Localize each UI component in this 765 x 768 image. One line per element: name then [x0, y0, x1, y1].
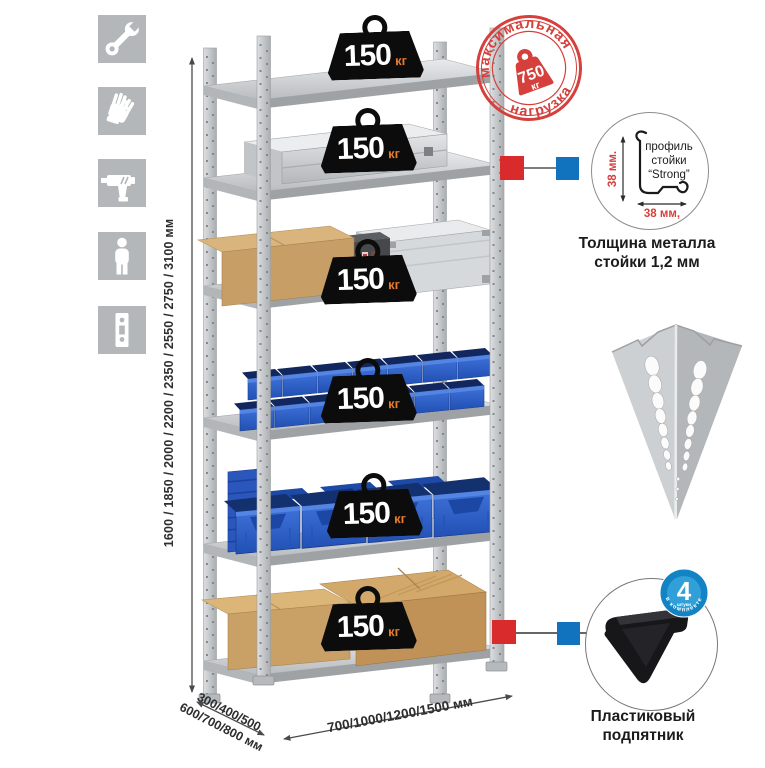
badge-unit: кг [388, 277, 400, 292]
shelf-load-badge-1: 150кг [326, 13, 424, 80]
badge-value: 150 [342, 496, 390, 532]
profile-callout-blue-square [556, 157, 579, 180]
corner-post-image [598, 318, 754, 530]
kit-badge-subtext: штуки [677, 602, 691, 607]
kit-quantity-badge: в комплекте 4 штуки [659, 568, 709, 618]
shelf-load-badge-2: 150кг [319, 106, 417, 173]
badge-unit: кг [388, 146, 400, 161]
profile-label-line3: “Strong” [648, 169, 690, 181]
rack-post-front-left [257, 36, 271, 682]
profile-label-line1: профиль [645, 141, 693, 153]
height-dimension-label: 1600 / 1850 / 2000 / 2200 / 2350 / 2550 … [162, 203, 180, 563]
stamp-weight-icon: 750 кг [506, 45, 555, 97]
drill-icon [98, 159, 146, 207]
profile-height-dim: 38 мм. [607, 151, 619, 187]
badge-value: 150 [336, 262, 384, 298]
product-infographic: { "side_icons": [ {"name": "wrench-icon"… [0, 0, 765, 765]
person-icon [98, 232, 146, 280]
wrench-icon [98, 15, 146, 63]
badge-value: 150 [336, 609, 384, 645]
foot-caption: Пластиковый подпятник [563, 707, 723, 746]
rack-post-icon [98, 306, 146, 354]
gloves-icon [98, 87, 146, 135]
shelf-load-badge-3: 150кг [319, 237, 417, 304]
profile-callout-circle: 38 мм. 38 мм, профиль стойки “Strong” [591, 112, 709, 230]
badge-unit: кг [395, 53, 407, 68]
shelf-load-badge-5: 150кг [325, 471, 423, 538]
badge-unit: кг [388, 624, 400, 639]
foot-callout-red-square [492, 620, 516, 644]
badge-unit: кг [394, 511, 406, 526]
profile-width-dim: 38 мм, [644, 208, 680, 220]
profile-caption: Толщина металла стойки 1,2 мм [567, 234, 727, 273]
profile-caption-line2: стойки 1,2 мм [567, 253, 727, 272]
profile-label-line2: стойки [651, 155, 686, 167]
foot-callout-blue-square [557, 622, 580, 645]
foot-caption-line1: Пластиковый [563, 707, 723, 726]
badge-value: 150 [343, 38, 391, 74]
profile-callout-red-square [500, 156, 524, 180]
badge-value: 150 [336, 131, 384, 167]
max-load-stamp: максимальная нагрузка 750 кг [464, 3, 594, 133]
foot-caption-line2: подпятник [563, 726, 723, 745]
plastic-foot-image [605, 609, 689, 683]
profile-caption-line1: Толщина металла [567, 234, 727, 253]
badge-unit: кг [388, 396, 400, 411]
shelf-load-badge-4: 150кг [319, 356, 417, 423]
shelf-load-badge-6: 150кг [319, 584, 417, 651]
badge-value: 150 [336, 381, 384, 417]
